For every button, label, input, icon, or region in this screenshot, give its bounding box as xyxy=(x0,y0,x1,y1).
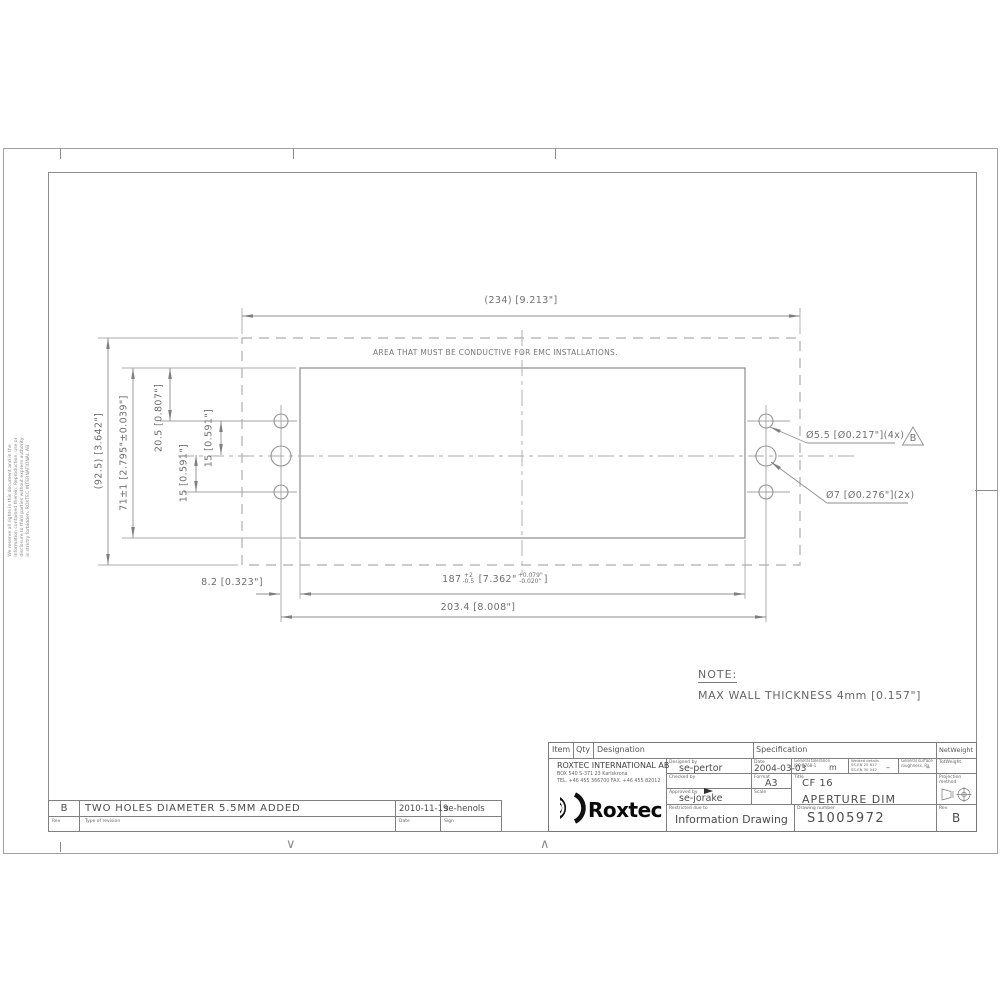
rev-value: B xyxy=(952,811,960,825)
totweight-label: TotWeight xyxy=(939,760,961,765)
scale-label: Scale xyxy=(754,790,766,795)
welded-details-label: Welded detailsSS-EN 25 817SS-EN 30 042 xyxy=(851,759,879,772)
company-name: ROXTEC INTERNATIONAL AB xyxy=(557,761,669,770)
projection-method-label: Projectionmethod xyxy=(939,775,961,785)
dim-hole-edge: 8.2 [0.323"] xyxy=(195,577,263,588)
fold-mark-up: ∧ xyxy=(540,837,550,852)
note-title: NOTE: xyxy=(698,668,737,683)
dim-aperture-width-main: 187 xyxy=(442,574,461,585)
fold-tick xyxy=(555,149,556,159)
drawing-number-value: S1005972 xyxy=(807,811,885,826)
title-line2: APERTURE DIM xyxy=(802,793,896,806)
projection-method-symbol xyxy=(940,786,974,807)
company-address: BOX 540 S-371 23 Karlskrona xyxy=(557,772,628,778)
copyright-note: We reserve all rights in this document a… xyxy=(8,437,32,556)
title-line1: CF 16 xyxy=(802,778,833,789)
dim-aperture-width-close: ] xyxy=(544,574,548,585)
drawing-sheet: ∨ ∧ We reserve all rights in this docume… xyxy=(0,0,1000,1000)
surface-roughness-value: – xyxy=(926,763,930,772)
note-body: MAX WALL THICKNESS 4mm [0.157"] xyxy=(698,689,921,702)
fold-tick xyxy=(60,842,61,852)
restricted-value: Information Drawing xyxy=(675,813,788,826)
revision-rev-value: B xyxy=(49,803,79,814)
revision-table: B TWO HOLES DIAMETER 5.5MM ADDED 2010-11… xyxy=(48,800,502,832)
checked-label: Checked by xyxy=(669,775,695,780)
header-item: Item xyxy=(552,745,570,754)
revision-date-label: Date xyxy=(399,819,410,824)
revision-description: TWO HOLES DIAMETER 5.5MM ADDED xyxy=(85,803,300,814)
general-tolerance-label: General toleranceISO 2768-1 xyxy=(794,759,830,768)
small-holes-callout: Ø5.5 [Ø0.217"](4x) xyxy=(806,430,904,441)
header-qty: Qty xyxy=(576,745,590,754)
dim-width-ref: (234) [9.213"] xyxy=(421,295,621,306)
format-value: A3 xyxy=(765,778,778,789)
tol-inch-minus: -0.020" xyxy=(518,579,543,585)
fold-tick xyxy=(60,149,61,159)
tol-minus: -0.5 xyxy=(463,579,475,585)
revision-type-label: Type of revision xyxy=(85,819,120,824)
roxtec-logo-text: Roxtec xyxy=(588,798,662,822)
copyright-line: is strictly forbidden. ROXTEC INTERNATIO… xyxy=(26,437,32,556)
dim-hole-spacing: 203.4 [8.008"] xyxy=(398,602,558,613)
revision-sign-value: se-henols xyxy=(444,804,485,814)
revision-rev-label: Rev xyxy=(52,819,60,824)
dim-aperture-height: 71±1 [2.795"±0.039"] xyxy=(119,395,130,511)
dim-height-ref: (92.5) [3.642"] xyxy=(94,413,105,490)
revision-date-value: 2010-11-19 xyxy=(399,804,448,814)
header-specification: Specification xyxy=(756,745,807,754)
dim-hole-top-offset: 20.5 [0.807"] xyxy=(154,384,165,452)
dim-hole-pitch-upper: 15 [0.591"] xyxy=(204,409,215,468)
restricted-label: Restricted due to xyxy=(669,806,708,811)
emc-area-label: AREA THAT MUST BE CONDUCTIVE FOR EMC INS… xyxy=(373,348,618,357)
general-tolerance-value: m xyxy=(829,763,837,772)
revision-sign-label: Sign xyxy=(444,819,454,824)
center-tick-right xyxy=(975,490,997,491)
dim-aperture-width: 187+2-0.5 [7.362"+0.079"-0.020"] xyxy=(405,573,585,586)
approved-value: se-jorake xyxy=(679,793,722,804)
roxtec-logo-mark: Roxtec xyxy=(555,791,665,825)
company-phone: TEL. +46 455 366700 FAX. +46 455 82012 xyxy=(557,779,660,785)
dim-hole-pitch-lower: 15 [0.591"] xyxy=(179,444,190,503)
dim-aperture-width-inch: [7.362" xyxy=(479,574,517,585)
header-designation: Designation xyxy=(597,745,645,754)
roxtec-logo: Roxtec xyxy=(555,791,665,825)
fold-tick xyxy=(293,149,294,159)
title-block: Item Qty Designation Specification NetWe… xyxy=(548,742,977,832)
welded-details-value: – xyxy=(886,763,890,772)
header-netweight: NetWeight xyxy=(939,746,973,754)
fold-mark-down: ∨ xyxy=(286,837,296,852)
large-holes-callout: Ø7 [Ø0.276"](2x) xyxy=(826,490,914,501)
designed-value: se-pertor xyxy=(679,763,722,774)
